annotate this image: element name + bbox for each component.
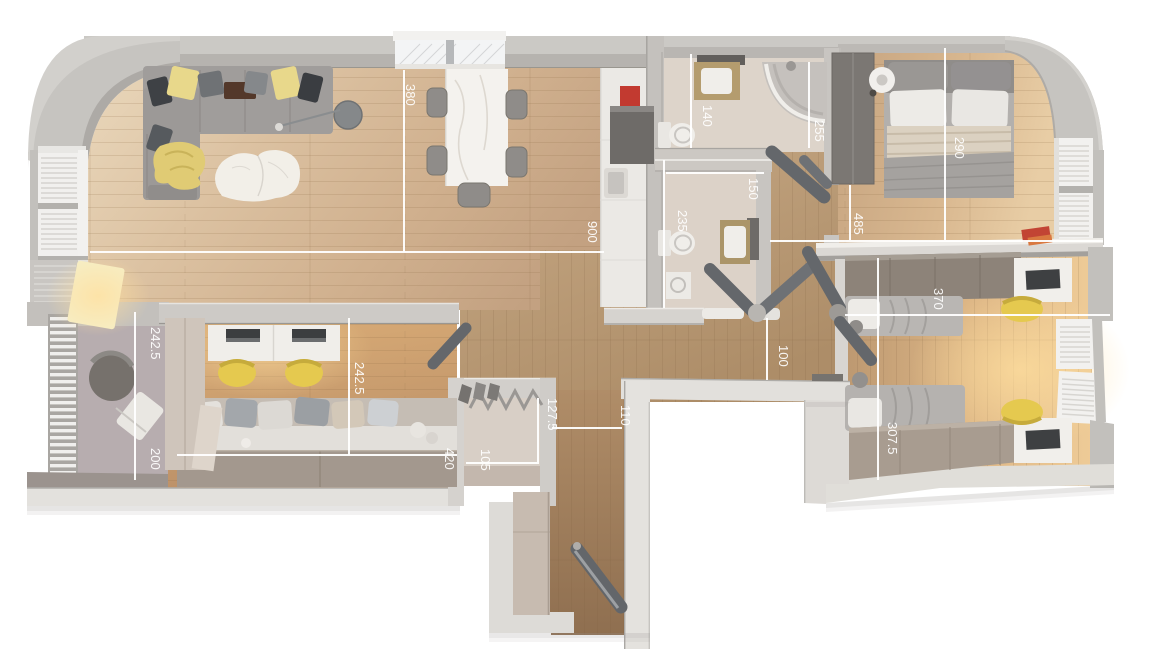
svg-text:235: 235	[675, 210, 690, 232]
svg-text:242.5: 242.5	[352, 362, 367, 395]
svg-text:127.5: 127.5	[545, 398, 560, 431]
svg-text:110: 110	[618, 405, 633, 426]
svg-text:242.5: 242.5	[148, 327, 163, 360]
svg-text:140: 140	[700, 105, 715, 127]
svg-text:150: 150	[746, 178, 761, 200]
svg-text:900: 900	[585, 221, 600, 243]
svg-text:100: 100	[776, 345, 791, 367]
svg-text:380: 380	[403, 84, 418, 106]
svg-text:255: 255	[812, 120, 827, 142]
svg-text:200: 200	[148, 448, 163, 470]
svg-text:370: 370	[931, 288, 946, 310]
svg-text:307.5: 307.5	[885, 422, 900, 455]
svg-text:105: 105	[478, 449, 493, 471]
svg-text:420: 420	[442, 448, 457, 470]
svg-text:290: 290	[952, 137, 967, 159]
svg-text:485: 485	[851, 213, 866, 235]
